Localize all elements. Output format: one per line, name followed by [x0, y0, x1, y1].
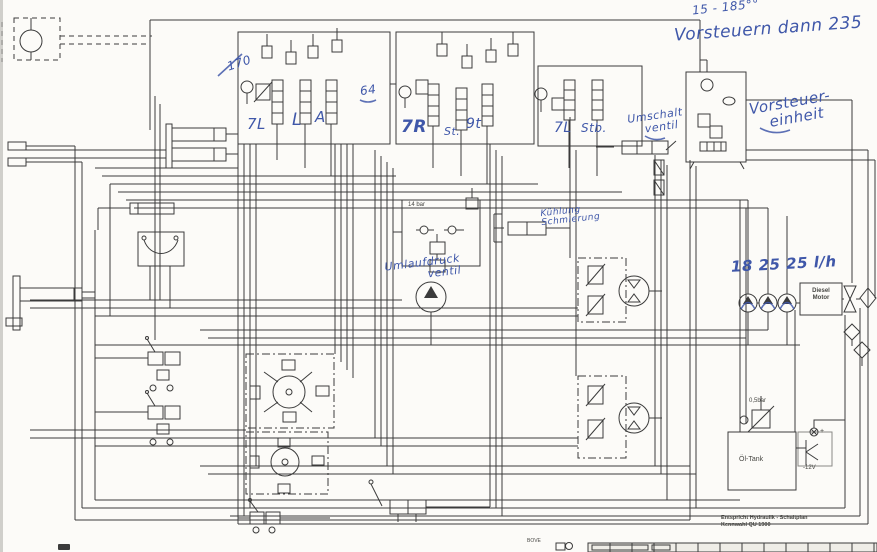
umlauf-line2: ventil [427, 264, 462, 280]
handwritten-vorsteuer-note: Vorsteuer- einheit [748, 88, 834, 133]
handwritten-pressure-170: 170 [226, 54, 253, 74]
handwritten-umlauf-note: Umlaufdruck ventil [384, 252, 462, 284]
label-plus: + [820, 428, 824, 436]
handwritten-note-64: 64 [359, 83, 377, 98]
bank1-label-l: L [292, 112, 302, 130]
bank3-label-stb: Stb. [581, 122, 607, 135]
annotation-overlay: 15 - 185°° Vorsteuern dann 235 Vorsteuer… [0, 0, 877, 552]
scan-edge-shadow [0, 0, 3, 552]
oil-tank-label: Öl-Tank [739, 456, 763, 464]
bank1-label-7l: 7L [247, 117, 266, 133]
bank1-label-a: A [315, 110, 326, 126]
titleblock-line1: Entspricht Hydraulik - Schaltplan [721, 515, 808, 521]
diesel-line2: Motor [800, 295, 842, 302]
label-minus-12v: -12V [803, 465, 816, 472]
handwritten-main-note: Vorsteuern dann 235 [674, 14, 863, 45]
label-14bar: 14 bar [408, 202, 425, 209]
handwritten-kuehlung-note: Kühlung Schmierung [540, 204, 601, 229]
label-05bar: 0,5bar [749, 398, 766, 405]
bank2-label-9t: 9t [466, 117, 481, 132]
scanned-hydraulic-schematic: 15 - 185°° Vorsteuern dann 235 Vorsteuer… [0, 0, 877, 552]
diesel-motor-label: Diesel Motor [800, 288, 842, 301]
bank2-label-st: St. [444, 126, 460, 138]
handwritten-flow-note: 15 - 185°° [692, 0, 760, 17]
handwritten-pump-flows: 18 25 25 l/h [731, 254, 837, 275]
bank3-label-7l: 7L [554, 121, 572, 136]
titleblock-line2: Kennwahl QU 1900 [721, 522, 771, 528]
bank2-label-7r: 7R [401, 119, 427, 137]
footer-mark: BOVE [527, 539, 541, 545]
handwritten-umschalt-note: Umschalt ventil [627, 106, 685, 137]
diesel-line1: Diesel [800, 288, 842, 295]
